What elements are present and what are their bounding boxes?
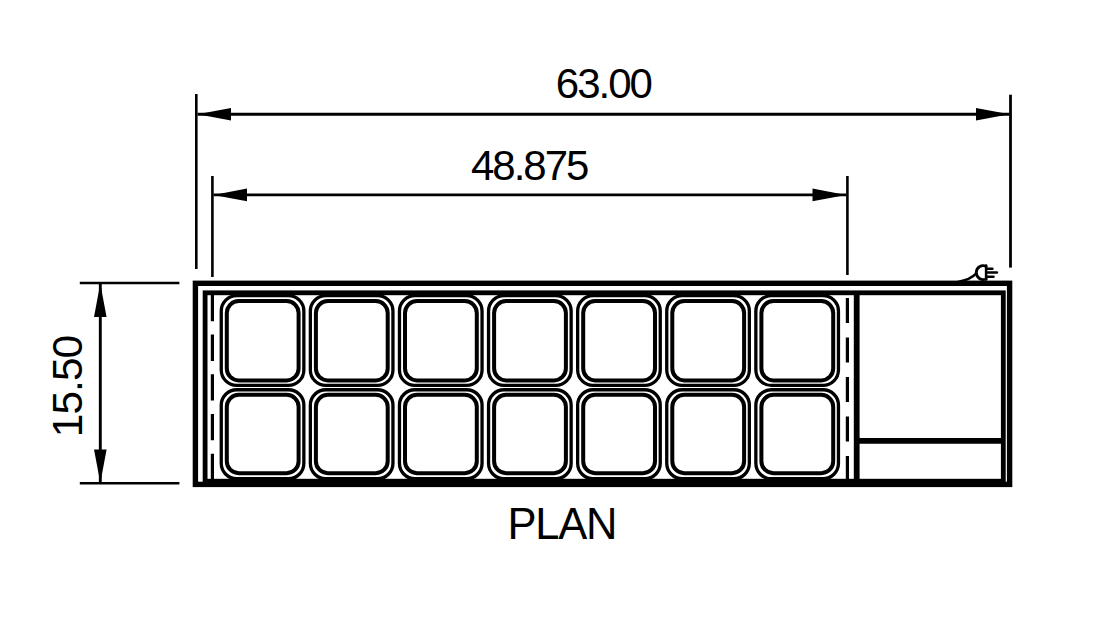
svg-text:63.00: 63.00: [556, 60, 652, 107]
svg-text:15.50: 15.50: [44, 336, 91, 437]
svg-text:PLAN: PLAN: [507, 500, 616, 548]
svg-text:48.875: 48.875: [471, 142, 588, 189]
